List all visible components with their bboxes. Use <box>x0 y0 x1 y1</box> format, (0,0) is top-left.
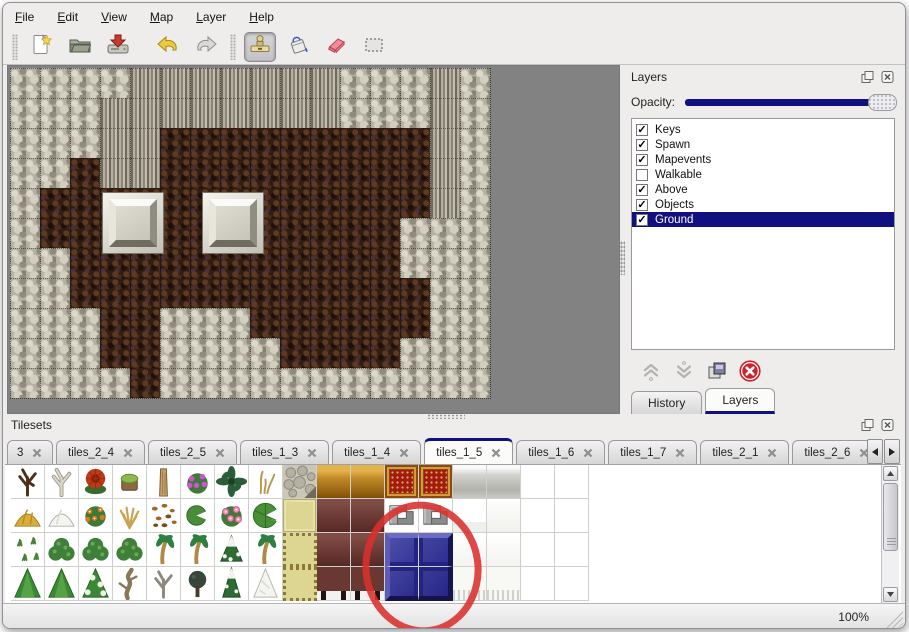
map-tile-rock[interactable] <box>10 158 40 188</box>
map-tile-floor[interactable] <box>280 278 310 308</box>
tileset-cell-tree-bare-gray[interactable] <box>147 567 181 601</box>
tileset-cell-empty[interactable] <box>521 499 555 533</box>
map-tile-rock[interactable] <box>460 98 490 128</box>
panel-tab-layers[interactable]: Layers <box>705 388 775 414</box>
map-tile-rock[interactable] <box>370 68 400 98</box>
map-tile-rock[interactable] <box>100 368 130 398</box>
fill-tool-button[interactable] <box>282 32 314 62</box>
menu-layer[interactable]: Layer <box>196 10 226 24</box>
map-tile-rock[interactable] <box>160 368 190 398</box>
scroll-tabs-right-button[interactable] <box>884 439 900 464</box>
layer-checkbox[interactable]: ✓ <box>636 214 648 226</box>
map-tile-floor[interactable] <box>70 188 100 218</box>
map-tile-cliff[interactable] <box>100 128 130 158</box>
eraser-tool-button[interactable] <box>320 32 352 62</box>
map-tile-floor[interactable] <box>100 278 130 308</box>
rect-select-tool-button[interactable] <box>358 32 390 62</box>
tileset-cell-blue-tl[interactable] <box>385 533 419 567</box>
tileset-cell-empty[interactable] <box>555 533 589 567</box>
map-tile-cliff[interactable] <box>310 98 340 128</box>
layer-checkbox[interactable]: ✓ <box>636 139 648 151</box>
map-tile-floor[interactable] <box>130 368 160 398</box>
map-tile-rock[interactable] <box>460 278 490 308</box>
map-tile-floor[interactable] <box>400 188 430 218</box>
map-tile-cliff[interactable] <box>430 98 460 128</box>
map-tile-cliff[interactable] <box>160 98 190 128</box>
tileset-tab-tiles_2_4[interactable]: tiles_2_4 <box>56 440 145 464</box>
tileset-grid[interactable] <box>11 465 589 601</box>
map-tile-cliff[interactable] <box>130 98 160 128</box>
map-tile-rock[interactable] <box>400 248 430 278</box>
map-tile-rock[interactable] <box>280 368 310 398</box>
map-tile-floor[interactable] <box>70 158 100 188</box>
tileset-cell-curtain-bl[interactable] <box>453 567 487 601</box>
tileset-tab-tiles_1_6[interactable]: tiles_1_6 <box>516 440 605 464</box>
map-tile-rock[interactable] <box>10 128 40 158</box>
map-tile-floor[interactable] <box>160 188 190 218</box>
map-tile-rock[interactable] <box>430 218 460 248</box>
close-tab-icon[interactable] <box>399 448 409 458</box>
map-tile-rock[interactable] <box>370 368 400 398</box>
map-tile-floor[interactable] <box>280 308 310 338</box>
map-tile-floor[interactable] <box>190 278 220 308</box>
map-tile-floor[interactable] <box>70 218 100 248</box>
map-tile-rock[interactable] <box>40 308 70 338</box>
map-tile-floor[interactable] <box>310 338 340 368</box>
map-tile-rock[interactable] <box>70 68 100 98</box>
new-file-button[interactable] <box>26 32 58 62</box>
map-tile-rock[interactable] <box>220 368 250 398</box>
tileset-view[interactable] <box>5 464 901 603</box>
tileset-cell-maroon-block[interactable] <box>317 499 351 533</box>
map-tile-cliff[interactable] <box>250 98 280 128</box>
tileset-cell-tree-cone[interactable] <box>45 567 79 601</box>
tileset-cell-trunk-tall[interactable] <box>147 465 181 499</box>
tileset-cell-bracket-gray[interactable] <box>385 499 419 533</box>
map-tile-floor[interactable] <box>280 188 310 218</box>
map-tile-rock[interactable] <box>10 98 40 128</box>
tileset-cell-stump[interactable] <box>113 465 147 499</box>
tileset-cell-gold-tile[interactable] <box>283 499 317 533</box>
tileset-cell-carpet-red[interactable] <box>385 465 419 499</box>
tileset-cell-tree-cone-snow[interactable] <box>79 567 113 601</box>
map-tile-rock[interactable] <box>460 308 490 338</box>
menu-file[interactable]: File <box>15 10 34 24</box>
map-tile-rock[interactable] <box>70 368 100 398</box>
map-tile-floor[interactable] <box>190 128 220 158</box>
tileset-cell-pine-snow[interactable] <box>215 533 249 567</box>
layer-checkbox[interactable]: ✓ <box>636 124 648 136</box>
tileset-cell-empty[interactable] <box>521 465 555 499</box>
tileset-cell-bush-green[interactable] <box>45 533 79 567</box>
map-tile-floor[interactable] <box>340 218 370 248</box>
map-tile-rock[interactable] <box>100 68 130 98</box>
tileset-cell-palm-dark[interactable] <box>215 465 249 499</box>
duplicate-layer-button[interactable] <box>705 359 729 383</box>
map-grid[interactable] <box>10 68 491 399</box>
map-tile-floor[interactable] <box>340 188 370 218</box>
tileset-cell-curtain-tl[interactable] <box>453 533 487 567</box>
map-tile-rock[interactable] <box>40 158 70 188</box>
map-tile-floor[interactable] <box>280 218 310 248</box>
map-tile-floor[interactable] <box>370 158 400 188</box>
map-tile-floor[interactable] <box>130 308 160 338</box>
tileset-cell-tree-twisted[interactable] <box>113 567 147 601</box>
map-tile-floor[interactable] <box>280 338 310 368</box>
stamp-tool-button[interactable] <box>244 32 276 62</box>
layer-row-ground[interactable]: ✓Ground <box>632 212 894 227</box>
tileset-cell-tree-bare-white[interactable] <box>45 465 79 499</box>
map-tile-floor[interactable] <box>370 278 400 308</box>
layer-row-above[interactable]: ✓Above <box>632 182 894 197</box>
tileset-cell-empty[interactable] <box>555 465 589 499</box>
tileset-cell-bush-green[interactable] <box>113 533 147 567</box>
map-tile-cliff[interactable] <box>190 68 220 98</box>
map-tile-rock[interactable] <box>40 278 70 308</box>
map-pillar[interactable] <box>202 192 264 254</box>
tileset-cell-flower-red[interactable] <box>79 465 113 499</box>
map-tile-cliff[interactable] <box>430 188 460 218</box>
map-tile-cliff[interactable] <box>100 98 130 128</box>
map-tile-floor[interactable] <box>280 128 310 158</box>
map-tile-floor[interactable] <box>400 128 430 158</box>
map-pillar[interactable] <box>102 192 164 254</box>
map-tile-rock[interactable] <box>190 338 220 368</box>
map-tile-floor[interactable] <box>100 338 130 368</box>
map-tile-rock[interactable] <box>160 308 190 338</box>
map-tile-floor[interactable] <box>160 158 190 188</box>
map-tile-rock[interactable] <box>70 338 100 368</box>
tileset-cell-tree-dark[interactable] <box>181 567 215 601</box>
map-tile-rock[interactable] <box>10 68 40 98</box>
map-tile-rock[interactable] <box>400 218 430 248</box>
tileset-tab-tiles_2_6[interactable]: tiles_2_6 <box>792 440 868 464</box>
map-tile-floor[interactable] <box>280 158 310 188</box>
map-tile-rock[interactable] <box>220 338 250 368</box>
map-tile-floor[interactable] <box>160 128 190 158</box>
tileset-cell-flowers-orange[interactable] <box>79 499 113 533</box>
resize-grip[interactable] <box>884 609 903 628</box>
map-tile-rock[interactable] <box>250 368 280 398</box>
tileset-cell-maroon-block[interactable] <box>317 533 351 567</box>
map-tile-rock[interactable] <box>310 368 340 398</box>
map-tile-floor[interactable] <box>160 248 190 278</box>
horizontal-splitter-handle[interactable] <box>427 414 465 419</box>
tileset-cell-blue-br[interactable] <box>419 567 453 601</box>
scroll-tabs-left-button[interactable] <box>867 439 883 464</box>
tileset-cell-bush-dry[interactable] <box>113 499 147 533</box>
map-tile-floor[interactable] <box>250 278 280 308</box>
map-tile-floor[interactable] <box>400 278 430 308</box>
tileset-cell-mound-hay[interactable] <box>11 499 45 533</box>
layer-row-objects[interactable]: ✓Objects <box>632 197 894 212</box>
float-panel-icon[interactable] <box>860 418 875 432</box>
map-tile-cliff[interactable] <box>130 128 160 158</box>
float-panel-icon[interactable] <box>860 70 875 84</box>
tileset-cell-sprig-dry[interactable] <box>249 465 283 499</box>
map-tile-rock[interactable] <box>10 338 40 368</box>
map-tile-floor[interactable] <box>40 218 70 248</box>
tileset-cell-bracket-gray[interactable] <box>419 499 453 533</box>
map-tile-rock[interactable] <box>460 128 490 158</box>
map-tile-rock[interactable] <box>460 248 490 278</box>
map-tile-floor[interactable] <box>310 218 340 248</box>
map-tile-cliff[interactable] <box>220 98 250 128</box>
map-tile-rock[interactable] <box>460 158 490 188</box>
layer-row-keys[interactable]: ✓Keys <box>632 122 894 137</box>
map-tile-rock[interactable] <box>10 278 40 308</box>
map-tile-floor[interactable] <box>370 128 400 158</box>
map-tile-floor[interactable] <box>130 338 160 368</box>
tileset-tab-tiles_2_5[interactable]: tiles_2_5 <box>148 440 237 464</box>
map-tile-cliff[interactable] <box>220 68 250 98</box>
tileset-cell-gold-top[interactable] <box>317 465 351 499</box>
map-tile-rock[interactable] <box>10 308 40 338</box>
map-tile-floor[interactable] <box>340 338 370 368</box>
tileset-cell-gold-top[interactable] <box>351 465 385 499</box>
map-tile-rock[interactable] <box>40 128 70 158</box>
map-tile-rock[interactable] <box>40 98 70 128</box>
map-tile-cliff[interactable] <box>250 68 280 98</box>
map-tile-floor[interactable] <box>370 338 400 368</box>
tileset-scrollbar[interactable] <box>881 465 899 603</box>
map-tile-cliff[interactable] <box>100 158 130 188</box>
menu-edit[interactable]: Edit <box>57 10 78 24</box>
map-tile-rock[interactable] <box>460 218 490 248</box>
map-tile-cliff[interactable] <box>430 68 460 98</box>
tileset-tab-tiles_2_1[interactable]: tiles_2_1 <box>700 440 789 464</box>
map-tile-floor[interactable] <box>340 248 370 278</box>
map-tile-rock[interactable] <box>430 368 460 398</box>
undo-button[interactable] <box>152 32 184 62</box>
map-tile-floor[interactable] <box>340 158 370 188</box>
tileset-cell-gold-tile-pat[interactable] <box>283 567 317 601</box>
tileset-cell-curtain-white[interactable] <box>453 499 487 533</box>
map-tile-rock[interactable] <box>160 338 190 368</box>
layer-checkbox[interactable]: ✓ <box>636 154 648 166</box>
map-tile-floor[interactable] <box>100 308 130 338</box>
map-tile-floor[interactable] <box>190 158 220 188</box>
map-canvas[interactable] <box>7 65 620 414</box>
scroll-down-button[interactable] <box>883 587 898 602</box>
tileset-cell-mound-snow[interactable] <box>45 499 79 533</box>
map-tile-floor[interactable] <box>370 308 400 338</box>
map-tile-rock[interactable] <box>460 368 490 398</box>
tileset-tab-tiles_1_7[interactable]: tiles_1_7 <box>608 440 697 464</box>
map-tile-floor[interactable] <box>400 308 430 338</box>
map-tile-rock[interactable] <box>340 68 370 98</box>
tileset-tab-tiles_1_3[interactable]: tiles_1_3 <box>240 440 329 464</box>
move-layer-down-button[interactable] <box>672 359 696 383</box>
open-map-button[interactable] <box>64 32 96 62</box>
map-tile-floor[interactable] <box>370 248 400 278</box>
close-tab-icon[interactable] <box>123 448 133 458</box>
tileset-cell-pine-snow-tall[interactable] <box>215 567 249 601</box>
map-tile-floor[interactable] <box>220 158 250 188</box>
map-tile-rock[interactable] <box>400 368 430 398</box>
tileset-cell-maroon-block[interactable] <box>351 499 385 533</box>
close-tab-icon[interactable] <box>215 448 225 458</box>
map-tile-rock[interactable] <box>220 308 250 338</box>
tileset-cell-maroon-legs[interactable] <box>317 567 351 601</box>
map-tile-rock[interactable] <box>340 98 370 128</box>
map-tile-rock[interactable] <box>40 248 70 278</box>
map-tile-floor[interactable] <box>130 278 160 308</box>
close-panel-icon[interactable] <box>880 70 895 84</box>
tileset-cell-curtain-tr[interactable] <box>487 533 521 567</box>
menu-map[interactable]: Map <box>150 10 173 24</box>
map-tile-rock[interactable] <box>430 338 460 368</box>
redo-button[interactable] <box>190 32 222 62</box>
scrollbar-thumb[interactable] <box>883 483 898 551</box>
map-tile-floor[interactable] <box>400 158 430 188</box>
layer-checkbox[interactable]: ✓ <box>636 184 648 196</box>
layer-row-spawn[interactable]: ✓Spawn <box>632 137 894 152</box>
close-tab-icon[interactable] <box>32 448 42 458</box>
tileset-cell-lilypad[interactable] <box>181 499 215 533</box>
close-tab-icon[interactable] <box>307 448 317 458</box>
map-tile-floor[interactable] <box>220 278 250 308</box>
map-tile-rock[interactable] <box>40 68 70 98</box>
map-tile-rock[interactable] <box>400 338 430 368</box>
close-tab-icon[interactable] <box>675 448 685 458</box>
map-tile-cliff[interactable] <box>280 68 310 98</box>
map-tile-rock[interactable] <box>40 338 70 368</box>
map-tile-cliff[interactable] <box>130 158 160 188</box>
save-map-button[interactable] <box>102 32 134 62</box>
map-tile-floor[interactable] <box>340 308 370 338</box>
tileset-cell-empty[interactable] <box>555 499 589 533</box>
tileset-cell-flowers-purple[interactable] <box>181 465 215 499</box>
map-tile-cliff[interactable] <box>160 68 190 98</box>
toolbar-drag-handle[interactable] <box>12 34 18 60</box>
tileset-cell-lilypad-big[interactable] <box>249 499 283 533</box>
map-tile-rock[interactable] <box>370 98 400 128</box>
map-tile-cliff[interactable] <box>430 158 460 188</box>
map-tile-rock[interactable] <box>10 218 40 248</box>
map-tile-floor[interactable] <box>250 128 280 158</box>
layer-row-walkable[interactable]: Walkable <box>632 167 894 182</box>
tileset-cell-sprigs-small[interactable] <box>11 533 45 567</box>
opacity-slider-handle[interactable] <box>868 94 897 111</box>
map-tile-floor[interactable] <box>310 278 340 308</box>
layer-checkbox[interactable] <box>636 169 648 181</box>
map-tile-cliff[interactable] <box>130 68 160 98</box>
map-tile-rock[interactable] <box>460 188 490 218</box>
tileset-cell-carpet-red[interactable] <box>419 465 453 499</box>
tileset-cell-flowers-pink[interactable] <box>215 499 249 533</box>
layer-row-mapevents[interactable]: ✓Mapevents <box>632 152 894 167</box>
map-tile-rock[interactable] <box>10 188 40 218</box>
map-tile-floor[interactable] <box>160 278 190 308</box>
tileset-cell-gold-tile-pat[interactable] <box>283 533 317 567</box>
tileset-cell-maroon-block[interactable] <box>351 533 385 567</box>
map-tile-floor[interactable] <box>310 248 340 278</box>
map-tile-floor[interactable] <box>280 248 310 278</box>
tileset-tab-tiles_1_5[interactable]: tiles_1_5 <box>424 438 513 464</box>
map-tile-rock[interactable] <box>190 308 220 338</box>
map-tile-rock[interactable] <box>70 308 100 338</box>
menu-view[interactable]: View <box>101 10 127 24</box>
move-layer-up-button[interactable] <box>639 359 663 383</box>
tileset-cell-tree-cone[interactable] <box>11 567 45 601</box>
tileset-cell-stone-pav[interactable] <box>283 465 317 499</box>
tileset-cell-maroon-legs[interactable] <box>351 567 385 601</box>
tileset-cell-silver-top[interactable] <box>487 465 521 499</box>
tileset-cell-blue-tr[interactable] <box>419 533 453 567</box>
map-tile-floor[interactable] <box>40 188 70 218</box>
tileset-cell-white-block[interactable] <box>487 499 521 533</box>
map-tile-rock[interactable] <box>460 68 490 98</box>
tileset-cell-tree-bare-dark[interactable] <box>11 465 45 499</box>
tileset-tab-3[interactable]: 3 <box>7 440 53 464</box>
delete-layer-button[interactable] <box>738 359 762 383</box>
map-tile-floor[interactable] <box>70 248 100 278</box>
map-tile-rock[interactable] <box>70 128 100 158</box>
close-tab-icon[interactable] <box>491 448 501 458</box>
map-tile-cliff[interactable] <box>190 98 220 128</box>
map-tile-floor[interactable] <box>340 278 370 308</box>
close-tab-icon[interactable] <box>767 448 777 458</box>
vertical-splitter-handle[interactable] <box>620 241 625 275</box>
map-tile-cliff[interactable] <box>430 128 460 158</box>
tileset-cell-empty[interactable] <box>555 567 589 601</box>
map-tile-floor[interactable] <box>370 218 400 248</box>
close-panel-icon[interactable] <box>880 418 895 432</box>
tileset-cell-empty[interactable] <box>521 567 555 601</box>
map-tile-floor[interactable] <box>310 308 340 338</box>
close-tab-icon[interactable] <box>583 448 593 458</box>
map-tile-floor[interactable] <box>340 128 370 158</box>
map-tile-rock[interactable] <box>400 98 430 128</box>
map-tile-floor[interactable] <box>310 128 340 158</box>
map-tile-cliff[interactable] <box>310 68 340 98</box>
map-tile-cliff[interactable] <box>280 98 310 128</box>
map-tile-rock[interactable] <box>400 68 430 98</box>
tileset-cell-leaves-scatter[interactable] <box>147 499 181 533</box>
map-tile-floor[interactable] <box>220 128 250 158</box>
map-tile-rock[interactable] <box>340 368 370 398</box>
tileset-cell-bush-green[interactable] <box>79 533 113 567</box>
map-tile-rock[interactable] <box>460 338 490 368</box>
map-tile-rock[interactable] <box>10 368 40 398</box>
map-tile-floor[interactable] <box>70 278 100 308</box>
tileset-cell-silver-top[interactable] <box>453 465 487 499</box>
tileset-cell-palm-tree[interactable] <box>249 533 283 567</box>
map-tile-floor[interactable] <box>370 188 400 218</box>
toolbar-drag-handle[interactable] <box>230 34 236 60</box>
map-tile-rock[interactable] <box>40 368 70 398</box>
tileset-cell-empty[interactable] <box>521 533 555 567</box>
map-tile-floor[interactable] <box>310 158 340 188</box>
menu-help[interactable]: Help <box>249 10 274 24</box>
tileset-tab-tiles_1_4[interactable]: tiles_1_4 <box>332 440 421 464</box>
tileset-cell-palm-tree[interactable] <box>147 533 181 567</box>
map-tile-floor[interactable] <box>310 188 340 218</box>
tileset-cell-curtain-br[interactable] <box>487 567 521 601</box>
map-tile-rock[interactable] <box>10 248 40 278</box>
tileset-cell-palm-tree[interactable] <box>181 533 215 567</box>
map-tile-floor[interactable] <box>160 218 190 248</box>
map-tile-rock[interactable] <box>190 368 220 398</box>
opacity-slider[interactable] <box>685 99 895 106</box>
map-tile-rock[interactable] <box>430 278 460 308</box>
panel-tab-history[interactable]: History <box>631 391 702 414</box>
map-tile-rock[interactable] <box>250 338 280 368</box>
map-tile-rock[interactable] <box>70 98 100 128</box>
map-tile-floor[interactable] <box>250 308 280 338</box>
layer-checkbox[interactable]: ✓ <box>636 199 648 211</box>
